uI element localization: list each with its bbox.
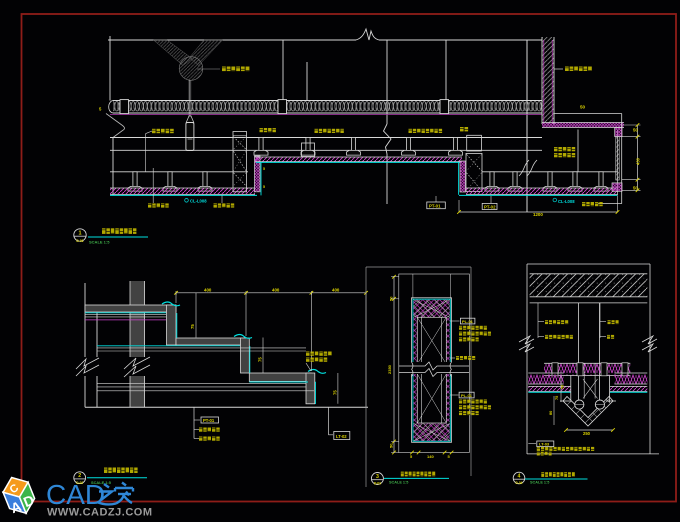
svg-text:80: 80 xyxy=(549,411,553,415)
svg-text:PT-01: PT-01 xyxy=(429,203,441,208)
svg-text:D-04: D-04 xyxy=(516,481,523,485)
svg-text:1200: 1200 xyxy=(533,212,543,217)
svg-text:SCALE 1:5: SCALE 1:5 xyxy=(389,480,408,484)
svg-text:75: 75 xyxy=(190,324,195,329)
svg-text:LT-03: LT-03 xyxy=(539,442,550,447)
svg-text:1: 1 xyxy=(78,231,81,237)
svg-text:D-01: D-01 xyxy=(76,239,83,243)
svg-text:PL-01: PL-01 xyxy=(462,319,474,324)
svg-text:400: 400 xyxy=(332,288,340,293)
svg-text:SCALE 1:5: SCALE 1:5 xyxy=(89,239,110,244)
svg-text:50: 50 xyxy=(580,105,586,110)
svg-text:3: 3 xyxy=(376,474,379,480)
svg-text:4: 4 xyxy=(518,474,521,480)
svg-text:5: 5 xyxy=(263,167,265,171)
svg-text:75: 75 xyxy=(555,396,559,400)
svg-text:75: 75 xyxy=(333,390,338,395)
svg-text:50: 50 xyxy=(633,186,638,191)
svg-text:50: 50 xyxy=(633,128,638,133)
svg-text:75: 75 xyxy=(258,357,263,362)
svg-text:CAD: CAD xyxy=(46,479,105,510)
svg-text:400: 400 xyxy=(204,288,212,293)
svg-text:CL-L008: CL-L008 xyxy=(558,199,575,204)
svg-text:50: 50 xyxy=(561,385,565,389)
svg-text:PL-01: PL-01 xyxy=(461,393,473,398)
svg-text:250: 250 xyxy=(583,431,591,436)
svg-text:140: 140 xyxy=(427,454,434,459)
svg-text:400: 400 xyxy=(272,288,280,293)
svg-text:5: 5 xyxy=(263,185,265,189)
svg-text:D-03: D-03 xyxy=(374,482,381,486)
svg-text:430: 430 xyxy=(636,157,641,165)
svg-text:50: 50 xyxy=(389,296,394,301)
svg-text:SCALE 1:5: SCALE 1:5 xyxy=(530,481,549,485)
svg-text:PT-01: PT-01 xyxy=(203,418,215,423)
svg-text:LT-02: LT-02 xyxy=(336,434,347,439)
svg-text:50: 50 xyxy=(389,443,394,448)
svg-text:CL-L008: CL-L008 xyxy=(190,199,207,204)
svg-text:PT-02: PT-02 xyxy=(484,205,496,210)
svg-text:WWW.CADZJ.COM: WWW.CADZJ.COM xyxy=(47,507,152,519)
svg-text:2350: 2350 xyxy=(387,364,392,374)
